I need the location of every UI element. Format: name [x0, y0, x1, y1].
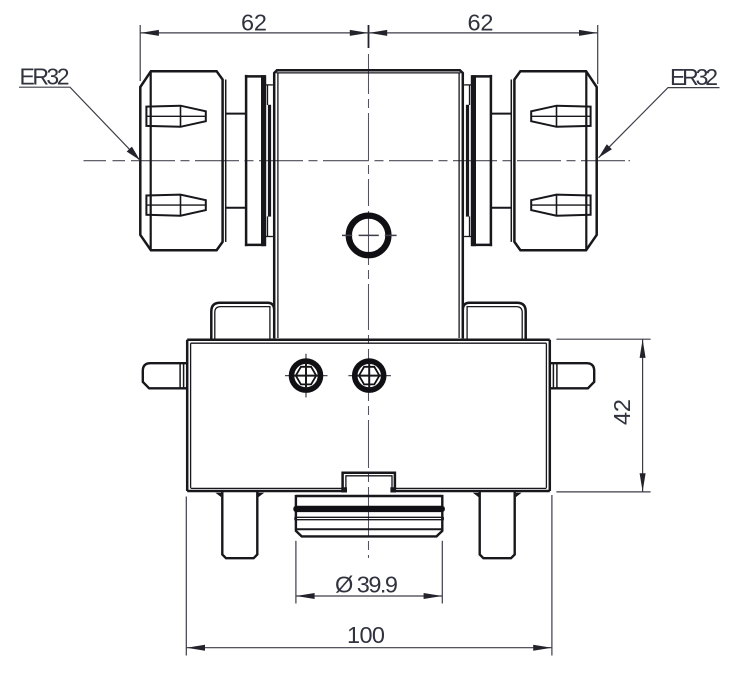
svg-text:Ø 39.9: Ø 39.9 [335, 571, 398, 597]
svg-text:100: 100 [347, 622, 385, 648]
svg-text:42: 42 [609, 399, 635, 425]
svg-text:ER32: ER32 [670, 64, 718, 90]
svg-text:ER32: ER32 [20, 64, 70, 90]
svg-text:62: 62 [468, 9, 494, 35]
svg-text:62: 62 [241, 9, 267, 35]
